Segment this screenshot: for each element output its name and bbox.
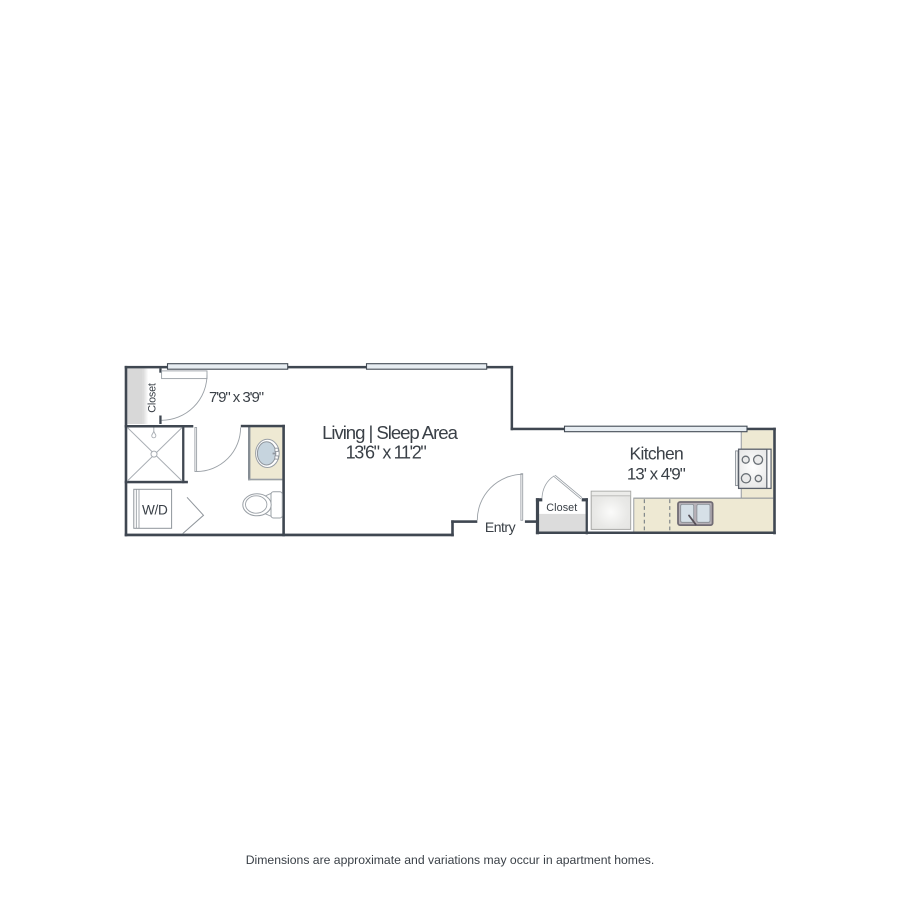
svg-text:7'9" x 3'9": 7'9" x 3'9" (209, 389, 264, 406)
svg-text:Living | Sleep Area: Living | Sleep Area (322, 422, 458, 443)
svg-text:Entry: Entry (485, 519, 516, 535)
svg-text:13' x 4'9": 13' x 4'9" (627, 465, 686, 484)
svg-text:Closet: Closet (546, 502, 577, 514)
svg-text:W/D: W/D (142, 502, 168, 517)
svg-text:Kitchen: Kitchen (630, 444, 683, 464)
svg-text:Dimensions are approximate and: Dimensions are approximate and variation… (246, 853, 654, 867)
svg-text:13'6" x 11'2": 13'6" x 11'2" (346, 443, 427, 463)
